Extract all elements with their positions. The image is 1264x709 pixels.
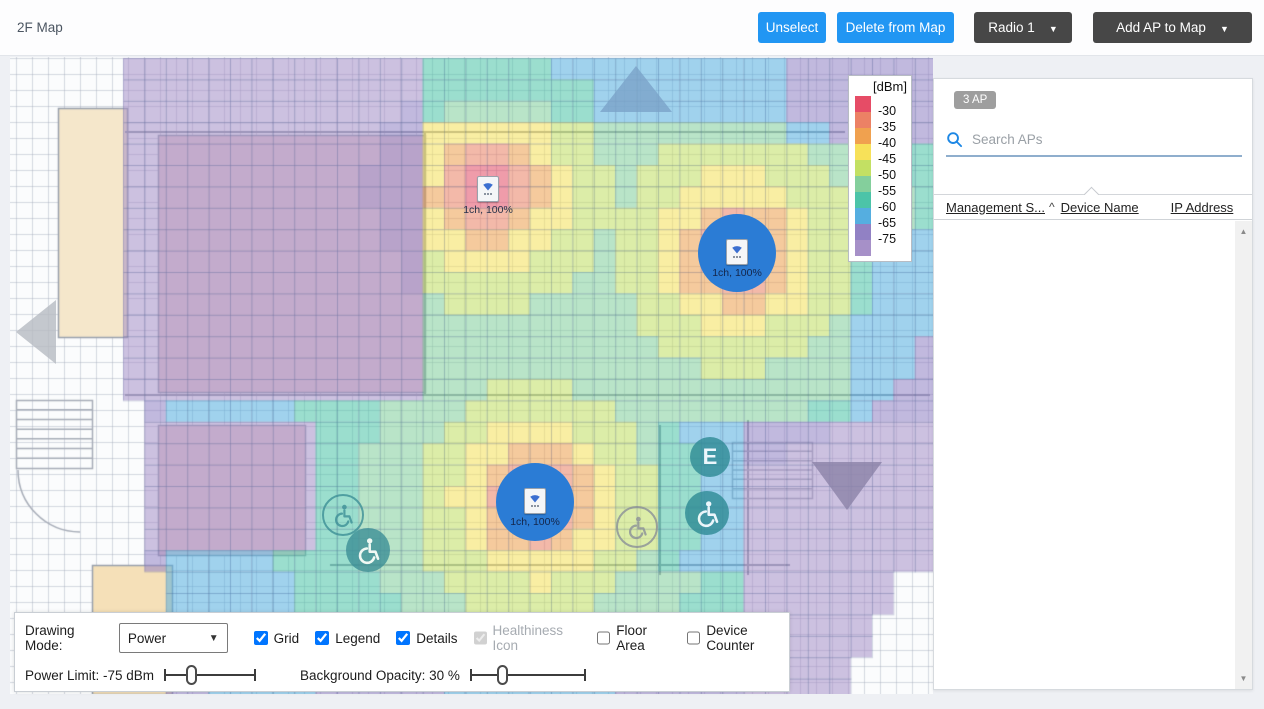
chevron-down-icon: ▼ (1049, 24, 1058, 34)
background-opacity-slider[interactable] (470, 665, 586, 685)
legend-label: -60 (878, 200, 896, 214)
vertical-scrollbar[interactable]: ▲ ▼ (1235, 221, 1252, 689)
sort-ascending-icon[interactable]: ^ (1049, 200, 1055, 214)
scroll-down-arrow[interactable]: ▼ (1235, 670, 1252, 687)
ap-count-badge: 3 AP (954, 91, 996, 109)
delete-from-map-button[interactable]: Delete from Map (837, 12, 954, 43)
ap-marker[interactable]: 1ch, 100% (505, 488, 565, 528)
map-controls-panel: Drawing Mode: Power ▼ GridLegendDetailsH… (14, 612, 790, 692)
ap-label: 1ch, 100% (463, 204, 513, 216)
column-header-device-name[interactable]: Device Name (1061, 200, 1139, 215)
unselect-button[interactable]: Unselect (758, 12, 826, 43)
checkbox-input[interactable] (396, 631, 410, 645)
checkbox-healthiness-icon[interactable]: Healthiness Icon (474, 623, 582, 653)
checkbox-label: Healthiness Icon (493, 623, 582, 653)
search-icon (946, 131, 963, 148)
scroll-up-arrow[interactable]: ▲ (1235, 223, 1252, 240)
ap-list[interactable]: ▲ ▼ (934, 221, 1252, 689)
ap-device-icon (726, 239, 748, 265)
legend-label: -65 (878, 216, 896, 230)
legend-title: [dBm] (855, 79, 911, 94)
checkbox-input[interactable] (254, 631, 268, 645)
ap-label: 1ch, 100% (712, 267, 762, 279)
checkbox-input[interactable] (597, 631, 610, 645)
checkbox-input[interactable] (687, 631, 700, 645)
chevron-down-icon: ▼ (209, 633, 219, 644)
legend-label: -45 (878, 152, 896, 166)
dbm-legend: [dBm] -30-35-40-45-50-55-60-65-75 (848, 75, 912, 262)
checkbox-grid[interactable]: Grid (254, 631, 300, 646)
legend-label: -75 (878, 232, 896, 246)
checkbox-label: Floor Area (616, 623, 671, 653)
heatmap-canvas[interactable] (10, 57, 933, 694)
column-header-ip-address[interactable]: IP Address (1171, 200, 1234, 215)
ap-marker[interactable]: 1ch, 100% (707, 239, 767, 279)
checkbox-floor-area[interactable]: Floor Area (597, 623, 671, 653)
add-ap-to-map-dropdown[interactable]: Add AP to Map▼ (1093, 12, 1252, 43)
ap-device-icon (477, 176, 499, 202)
legend-swatch (855, 240, 871, 256)
legend-swatch (855, 208, 871, 224)
ap-list-panel: 3 AP Management S...^Device NameIP Addre… (933, 78, 1253, 690)
ap-device-icon (524, 488, 546, 514)
legend-swatch (855, 96, 871, 112)
legend-swatch (855, 176, 871, 192)
wheelchair-icon (346, 528, 390, 572)
checkbox-device-counter[interactable]: Device Counter (687, 623, 789, 653)
search-aps-input[interactable] (972, 132, 1242, 147)
legend-label: -50 (878, 168, 896, 182)
ap-table-header: Management S...^Device NameIP Address (934, 195, 1252, 220)
map-arrow-left-icon (16, 300, 56, 364)
checkbox-label: Details (416, 631, 457, 646)
top-toolbar: 2F Map Unselect Delete from Map Radio 1▼… (0, 0, 1264, 56)
wheelchair-icon (616, 506, 658, 548)
checkbox-label: Legend (335, 631, 380, 646)
checkbox-label: Grid (274, 631, 300, 646)
drawing-mode-label: Drawing Mode: (25, 623, 111, 653)
background-opacity-slider-thumb[interactable] (497, 665, 508, 685)
ap-marker[interactable]: 1ch, 100% (458, 176, 518, 216)
legend-swatch (855, 112, 871, 128)
power-limit-label: Power Limit: -75 dBm (25, 668, 154, 683)
ap-label: 1ch, 100% (510, 516, 560, 528)
power-limit-slider-thumb[interactable] (186, 665, 197, 685)
legend-swatch (855, 224, 871, 240)
map-arrow-up-icon (600, 66, 672, 112)
legend-swatch (855, 128, 871, 144)
radio-select-dropdown[interactable]: Radio 1▼ (974, 12, 1072, 43)
legend-swatch (855, 144, 871, 160)
legend-swatch (855, 160, 871, 176)
search-row (946, 123, 1242, 157)
elevator-icon: E (690, 437, 730, 477)
drawing-mode-select[interactable]: Power ▼ (119, 623, 228, 653)
checkbox-input (474, 631, 487, 645)
legend-label: -55 (878, 184, 896, 198)
checkbox-legend[interactable]: Legend (315, 631, 380, 646)
power-limit-slider[interactable] (164, 665, 256, 685)
checkbox-details[interactable]: Details (396, 631, 457, 646)
checkbox-label: Device Counter (706, 623, 789, 653)
checkbox-input[interactable] (315, 631, 329, 645)
floor-map[interactable]: E1ch, 100%1ch, 100%1ch, 100% [dBm] -30-3… (10, 57, 933, 694)
legend-swatch (855, 192, 871, 208)
chevron-down-icon: ▼ (1220, 24, 1229, 34)
background-opacity-label: Background Opacity: 30 % (300, 668, 460, 683)
wheelchair-icon (685, 491, 729, 535)
legend-label: -30 (878, 104, 896, 118)
elevator-label: E (703, 444, 718, 470)
legend-label: -40 (878, 136, 896, 150)
map-arrow-down-icon (812, 462, 882, 510)
page-title: 2F Map (17, 20, 63, 35)
legend-label: -35 (878, 120, 896, 134)
column-header-management-s-[interactable]: Management S... (946, 200, 1045, 215)
